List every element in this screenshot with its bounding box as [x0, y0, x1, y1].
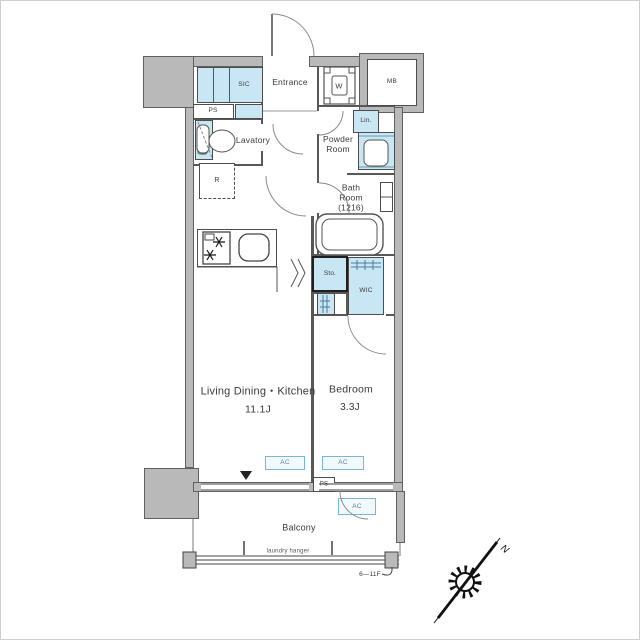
compass-north-label: N: [498, 543, 511, 557]
label-balcony: Balcony: [282, 523, 315, 534]
railing-post-right: [385, 552, 398, 568]
label-ps-top: PS: [208, 107, 217, 115]
label-entrance: Entrance: [272, 77, 308, 87]
kitchen-front-edge: [197, 267, 277, 292]
bedroom-door-arc: [348, 316, 386, 354]
railing-post-left: [183, 552, 196, 568]
label-refrigerator: R: [214, 177, 219, 185]
side-closet-rail: [323, 295, 327, 313]
storage-folding-door: [291, 259, 305, 287]
label-washer: W: [335, 82, 342, 91]
label-ac-living: AC: [280, 459, 289, 467]
label-lavatory: Lavatory: [236, 135, 270, 145]
lavatory-door-arc: [273, 124, 303, 154]
balcony-railing: [187, 556, 399, 564]
toilet-bowl: [209, 130, 235, 152]
label-ac-outdoor: AC: [352, 503, 361, 511]
powder-door-arc: [319, 111, 343, 135]
label-ac-bedroom: AC: [338, 459, 347, 467]
powder-sink: [364, 140, 388, 166]
label-ldk-size: 11.1J: [245, 404, 271, 417]
direction-marker: [240, 471, 252, 480]
label-laundry-hanger: laundry hanger: [267, 548, 310, 555]
label-bedroom-size: 3.3J: [340, 402, 360, 414]
label-wic: WIC: [359, 287, 372, 295]
label-ps-bottom: PS: [320, 481, 328, 488]
label-linen: Lin.: [360, 117, 371, 125]
floor-plan: N Entrance SIC PS W MB Lin. Lavatory Pow…: [0, 0, 640, 640]
side-closet-ticks: [320, 301, 330, 307]
plan-linework: N: [1, 1, 640, 640]
label-sic: SIC: [238, 81, 249, 89]
compass-icon: N: [434, 538, 511, 623]
entrance-door-arc: [272, 14, 314, 56]
label-storage: Sto.: [324, 270, 336, 278]
ldk-door-arc: [266, 176, 306, 216]
wic-hanger-rail: [351, 263, 381, 267]
label-bath-room: Bath Room (1216): [338, 183, 364, 214]
wic-hanger-ticks: [357, 260, 373, 270]
label-powder-room: Powder Room: [323, 134, 353, 154]
label-meter-box: MB: [387, 78, 397, 86]
label-ldk: Living Dining・Kitchen: [201, 385, 316, 398]
kitchen-sink: [239, 234, 269, 261]
label-floor-range: 6—11F: [359, 571, 381, 579]
label-bedroom: Bedroom: [329, 384, 373, 397]
lavatory-sink: [197, 125, 209, 153]
